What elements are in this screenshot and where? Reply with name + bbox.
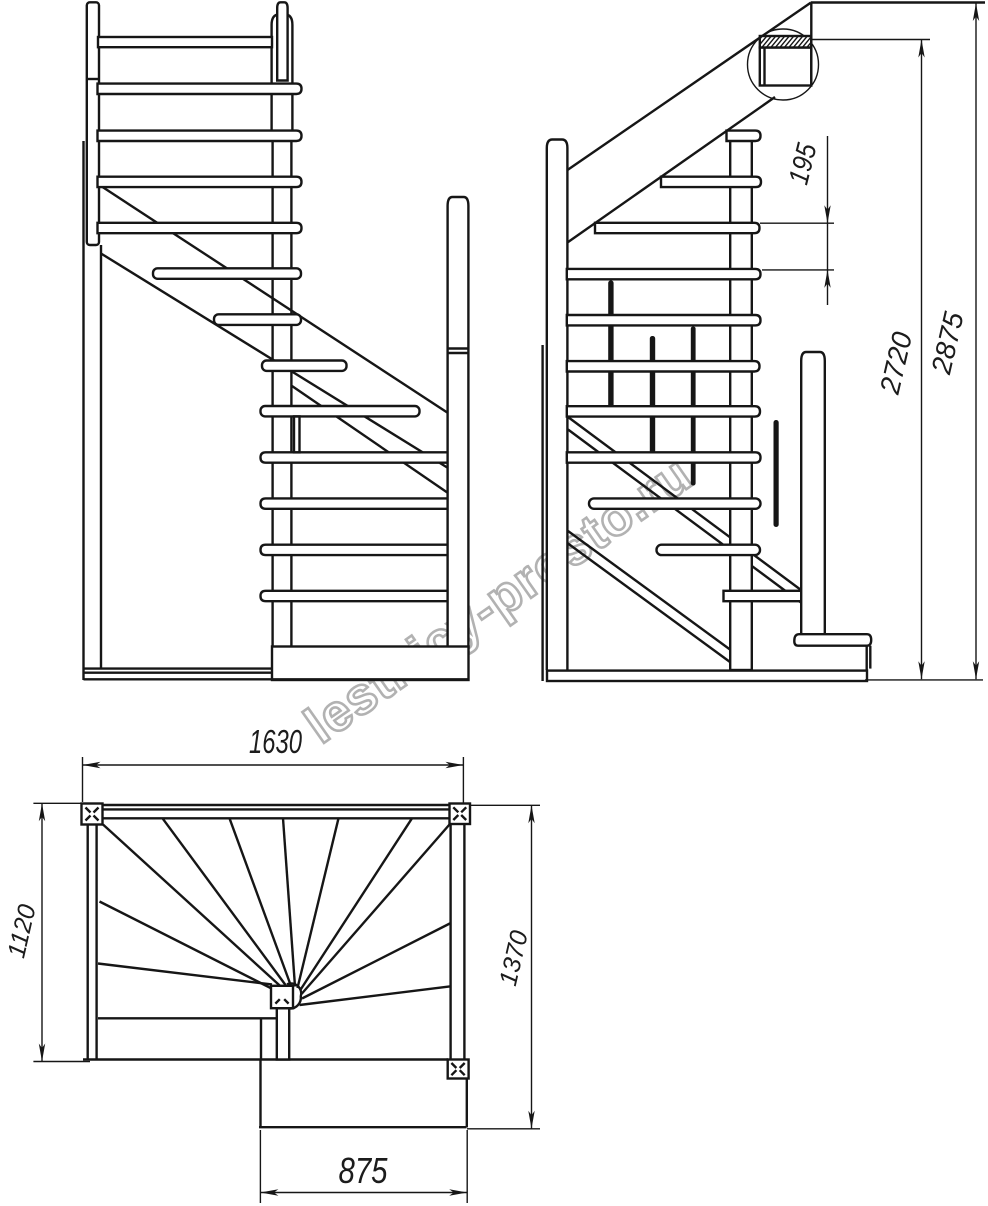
svg-text:1630: 1630 — [249, 723, 302, 760]
svg-text:875: 875 — [339, 1150, 389, 1191]
